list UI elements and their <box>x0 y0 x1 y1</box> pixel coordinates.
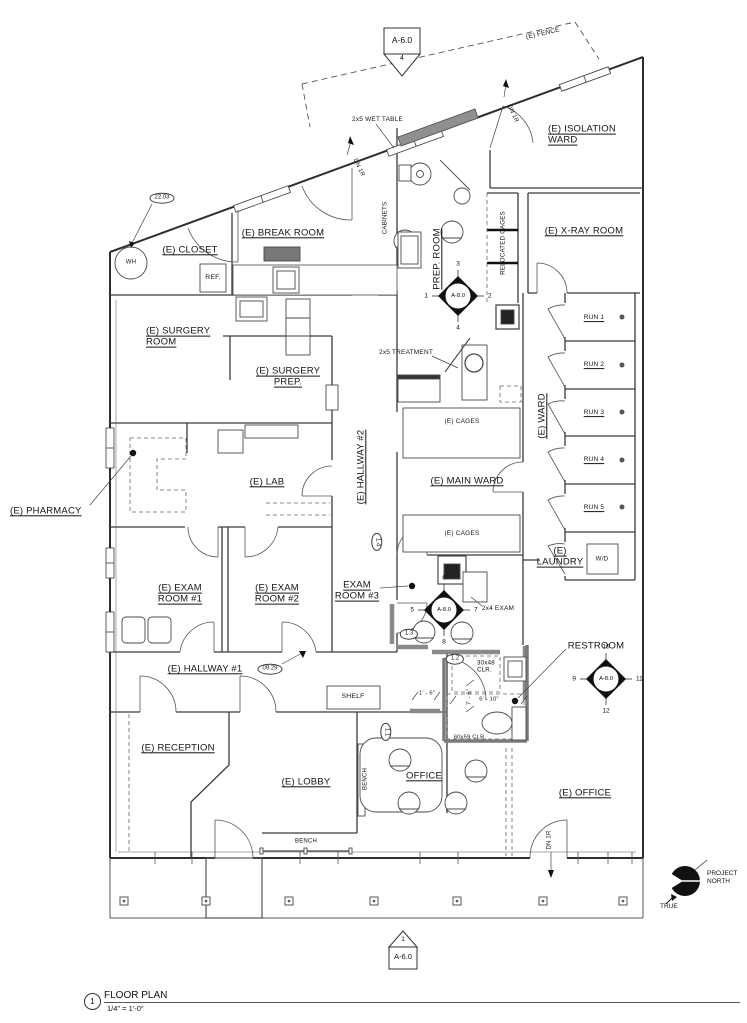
cage-bank-1 <box>403 408 520 458</box>
cage-dividers <box>487 230 518 263</box>
fence-line <box>302 22 599 84</box>
porch <box>110 858 643 918</box>
exam1-chair <box>122 617 145 643</box>
exam1-chair-2 <box>148 617 171 643</box>
dashed-lines <box>302 22 599 127</box>
lab-table <box>218 430 243 453</box>
project-north-label: PROJECT NORTH <box>707 870 737 886</box>
lab-counter <box>245 425 298 438</box>
break-counter <box>233 265 397 295</box>
office-chair <box>389 749 411 771</box>
exam3-stool-2 <box>451 622 473 644</box>
floor-plan-sheet: (E) ISOLATION WARD(E) X-RAY ROOM(E) BREA… <box>0 0 747 1023</box>
toilet <box>482 712 512 734</box>
wet-table <box>398 109 478 146</box>
office-chair-4 <box>445 792 467 814</box>
exam3-stool <box>413 621 435 643</box>
door-swings <box>140 106 567 858</box>
prep-chair-2 <box>441 221 463 243</box>
shelf-box <box>327 686 380 709</box>
windows <box>106 67 611 652</box>
title-underline <box>104 1002 740 1003</box>
refrigerator <box>200 264 226 292</box>
true-north-label: TRUE <box>660 903 678 911</box>
title-block: 1 FLOOR PLAN 1/4" = 1'-0" <box>80 988 740 1018</box>
office-chair-3 <box>398 792 420 814</box>
water-heater <box>115 247 147 279</box>
sheet-ref-top-label: A-6.0 <box>383 35 421 45</box>
floor-plan-drawing <box>0 0 747 1023</box>
break-table <box>264 247 300 261</box>
exam3-desk <box>463 572 487 602</box>
washer-dryer <box>587 544 618 574</box>
detail-number-bubble: 1 <box>84 993 101 1010</box>
leader-lines <box>90 84 566 872</box>
drawing-scale: 1/4" = 1'-0" <box>107 1004 144 1013</box>
north-arrow-icon <box>666 860 707 904</box>
prep-equipment <box>454 188 470 204</box>
furniture <box>115 109 618 854</box>
drawing-title: FLOOR PLAN <box>104 990 167 1001</box>
run-door-dots <box>620 315 625 510</box>
leader-dots <box>129 79 554 878</box>
office-chair-2 <box>465 760 487 782</box>
sheet-ref-top: A-6.0 4 <box>383 27 421 77</box>
toilet-tank <box>512 707 526 740</box>
pass-through <box>326 385 338 410</box>
sheet-ref-top-number: 4 <box>383 55 421 62</box>
sheet-ref-bottom-label: A-6.0 <box>388 952 418 961</box>
surgery-table <box>286 299 310 355</box>
cage-bank-2 <box>403 515 520 552</box>
sheet-ref-bottom: 1 A-6.0 <box>388 930 418 970</box>
sheet-ref-bottom-number: 1 <box>388 936 418 943</box>
